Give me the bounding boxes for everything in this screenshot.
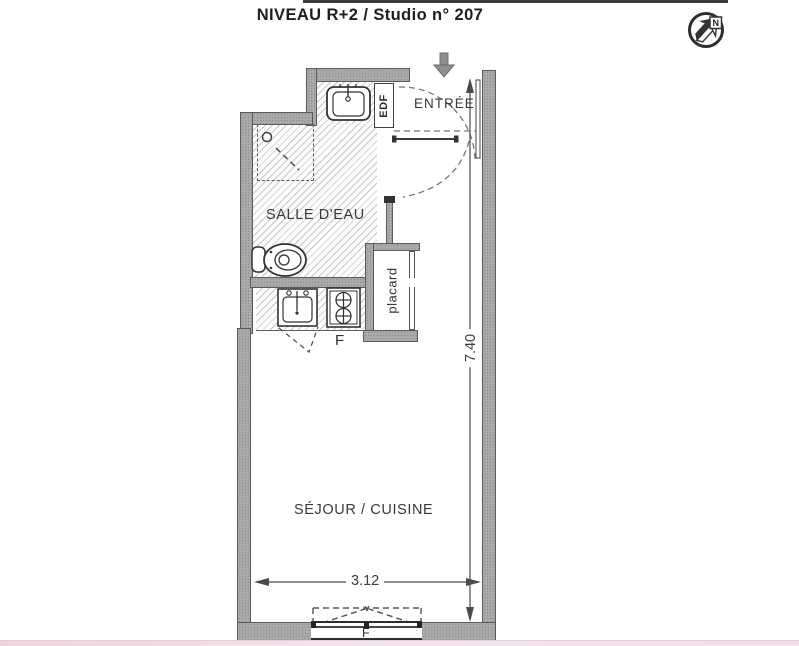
kitchen-counter-hatch	[256, 288, 365, 331]
wall-closet-bottom	[363, 330, 418, 342]
shower-outline	[257, 124, 314, 181]
page-title: NIVEAU R+2 / Studio n° 207	[180, 6, 560, 25]
entree-label: ENTRÉE	[414, 96, 475, 111]
closet-door-face	[409, 251, 415, 330]
salle-deau-label: SALLE D'EAU	[266, 207, 365, 223]
dimension-height-label: 7.40	[463, 329, 479, 367]
edf-closet: EDF	[374, 83, 394, 128]
floor-plan-page: NIVEAU R+2 / Studio n° 207 N EDF placard	[0, 0, 799, 646]
bathroom-counter-hatch	[317, 82, 374, 125]
north-arrow-icon	[688, 10, 725, 48]
wall-left-upper	[240, 112, 253, 334]
wall-closet-left	[365, 243, 374, 342]
edf-label: EDF	[378, 94, 390, 118]
sheet-border-line	[303, 0, 728, 3]
wall-hall-stub	[386, 200, 393, 244]
placard-label: placard	[385, 267, 400, 313]
wall-top	[306, 68, 410, 82]
compass-n-label: N	[713, 18, 720, 28]
north-compass-icon: N	[686, 9, 728, 51]
window-label: F	[362, 626, 370, 640]
window-mullion-right	[417, 622, 422, 628]
window-mullion-left	[311, 622, 316, 628]
wall-hall-stub-cap	[384, 196, 395, 203]
closet-door-notch	[408, 278, 416, 287]
wall-right	[482, 70, 496, 646]
wall-left-lower	[237, 328, 251, 641]
entrance-arrow-icon	[434, 53, 454, 77]
dimension-width-label: 3.12	[346, 573, 384, 589]
sejour-cuisine-label: SÉJOUR / CUISINE	[294, 502, 433, 518]
fridge-label: F	[335, 332, 344, 349]
wall-bathroom-bottom	[250, 277, 376, 288]
bottom-accent-strip	[0, 640, 799, 646]
closet-placard: placard	[374, 251, 411, 330]
